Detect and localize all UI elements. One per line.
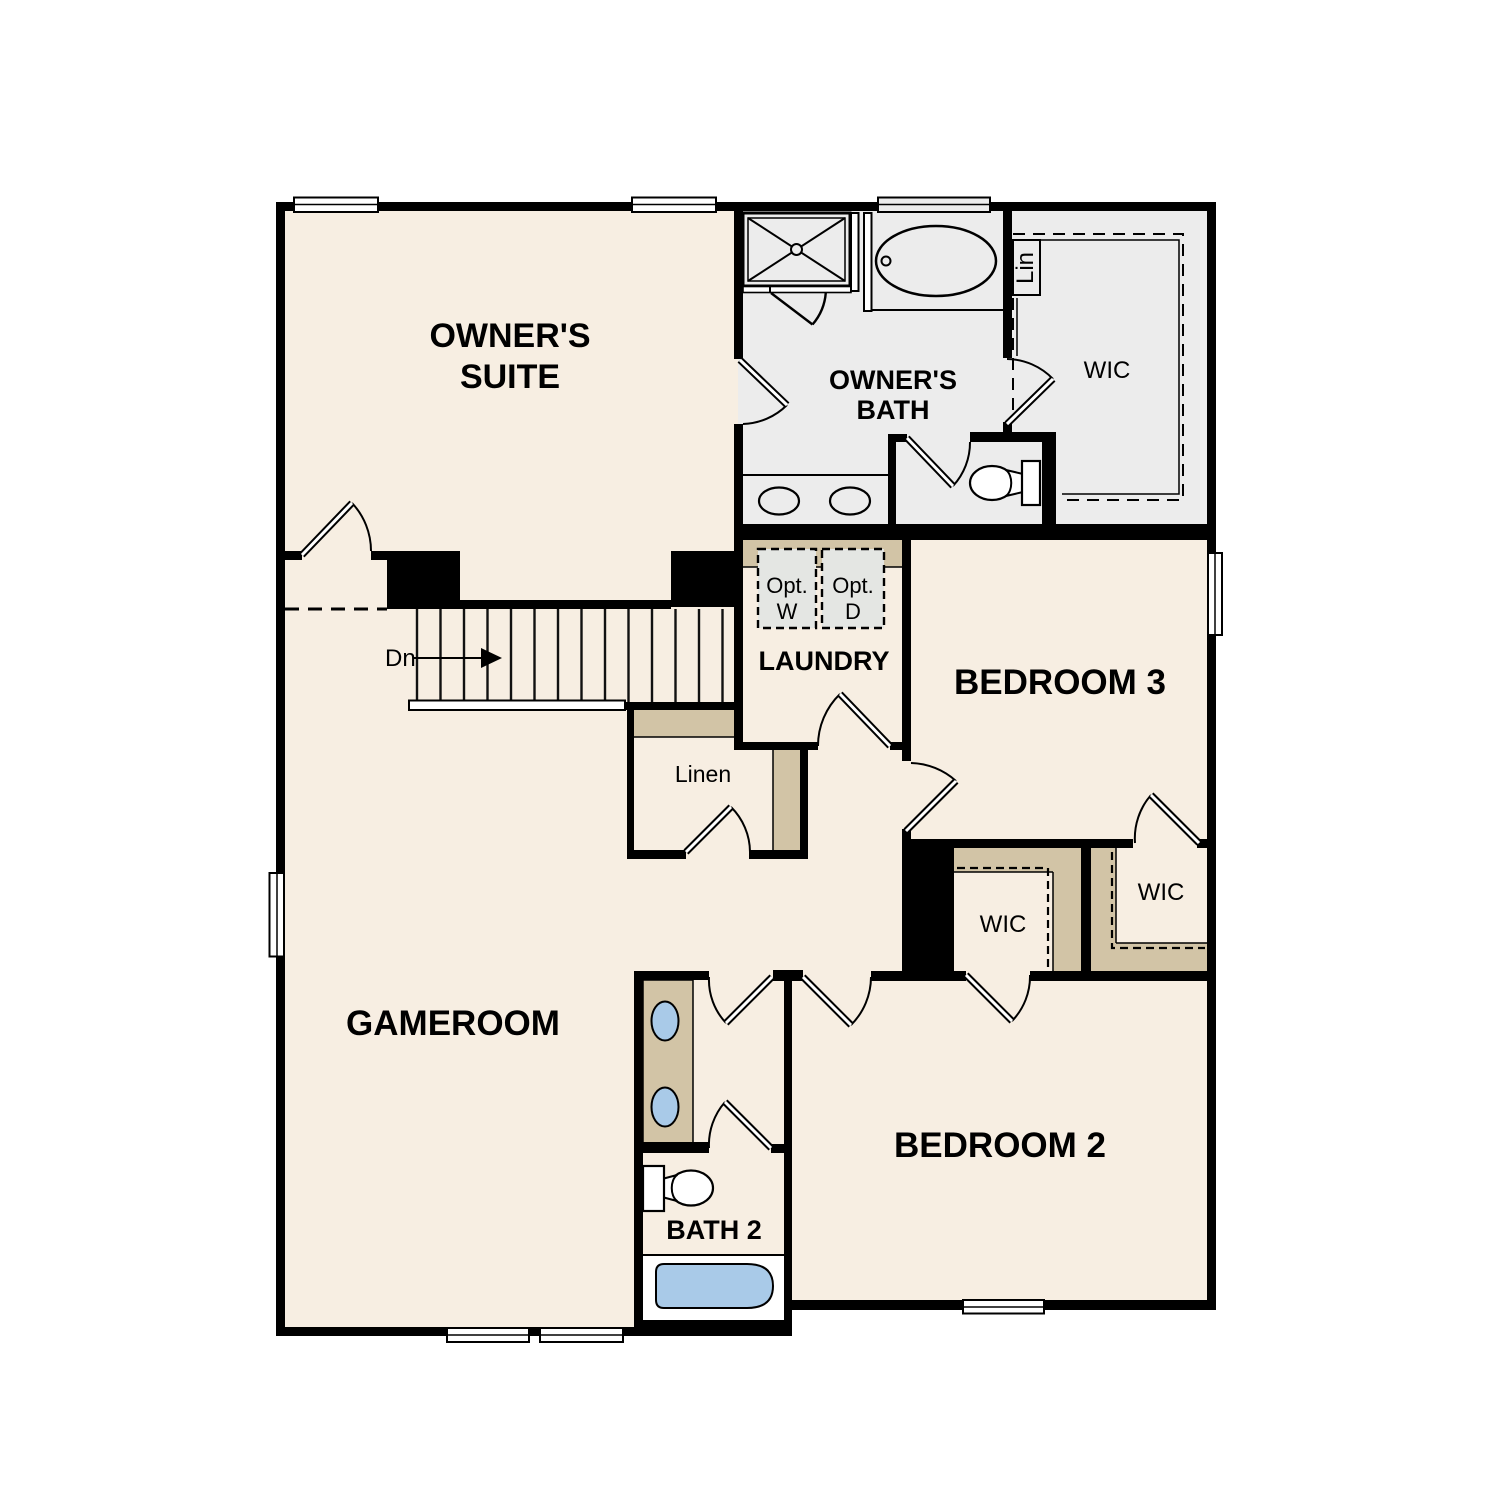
svg-text:Opt.: Opt.	[766, 573, 808, 598]
svg-text:Linen: Linen	[675, 761, 731, 787]
svg-text:BATH 2: BATH 2	[666, 1215, 762, 1245]
svg-text:BEDROOM 3: BEDROOM 3	[954, 663, 1166, 702]
svg-text:WIC: WIC	[1084, 357, 1131, 384]
svg-text:D: D	[845, 599, 861, 624]
svg-text:Opt.: Opt.	[832, 573, 874, 598]
svg-text:Dn: Dn	[385, 645, 416, 672]
svg-text:BATH: BATH	[857, 395, 930, 425]
svg-text:WIC: WIC	[980, 911, 1027, 938]
svg-text:WIC: WIC	[1138, 879, 1185, 906]
svg-text:LAUNDRY: LAUNDRY	[759, 646, 890, 676]
svg-text:BEDROOM 2: BEDROOM 2	[894, 1126, 1106, 1165]
svg-text:OWNER'S: OWNER'S	[829, 365, 957, 395]
svg-text:SUITE: SUITE	[460, 358, 560, 396]
svg-text:Lin: Lin	[1012, 252, 1039, 284]
svg-text:W: W	[777, 599, 798, 624]
svg-text:OWNER'S: OWNER'S	[429, 317, 590, 355]
svg-text:GAMEROOM: GAMEROOM	[346, 1004, 560, 1043]
